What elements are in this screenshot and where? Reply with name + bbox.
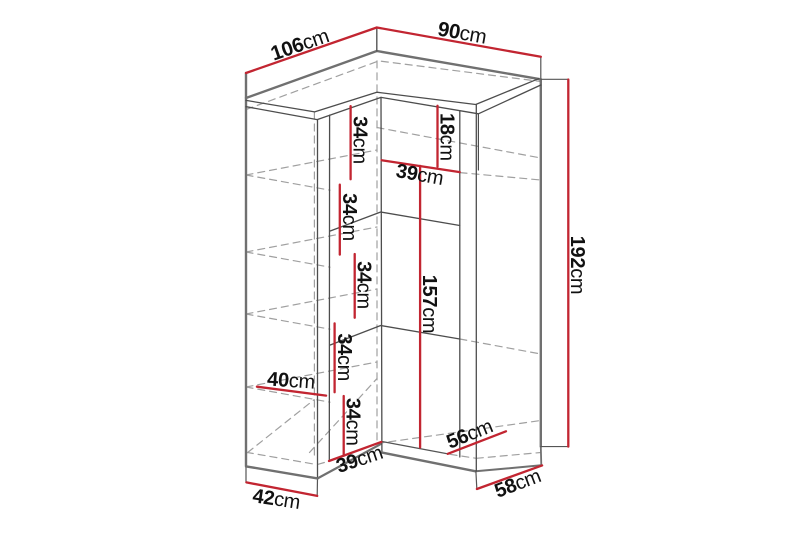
svg-text:34cm: 34cm (333, 333, 355, 381)
svg-text:34cm: 34cm (342, 398, 364, 446)
svg-text:34cm: 34cm (338, 193, 360, 241)
svg-text:157cm: 157cm (418, 275, 440, 334)
svg-text:34cm: 34cm (349, 116, 371, 164)
svg-text:34cm: 34cm (353, 261, 375, 309)
svg-text:192cm: 192cm (566, 236, 588, 295)
svg-text:18cm: 18cm (436, 113, 458, 161)
svg-text:40cm: 40cm (266, 368, 315, 393)
